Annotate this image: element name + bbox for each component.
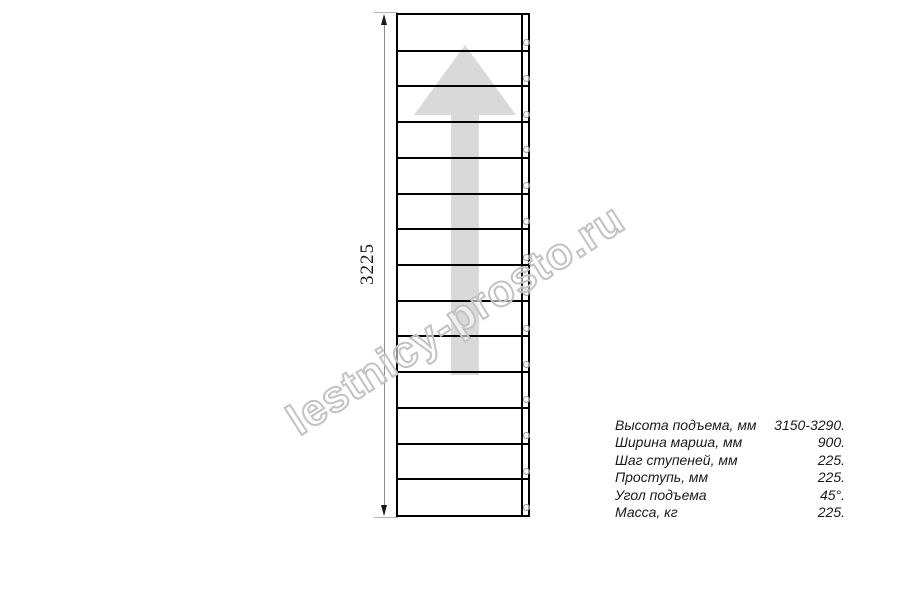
- screw-hole-icon: [523, 396, 530, 403]
- spec-label: Угол подъема: [615, 487, 707, 504]
- tread-line: [398, 85, 528, 87]
- spec-row: Ширина марша, мм 900.: [615, 434, 845, 451]
- screw-hole-icon: [523, 504, 530, 511]
- extension-line-bottom: [374, 517, 398, 518]
- screw-hole-icon: [523, 182, 530, 189]
- height-dimension-label: 3225: [357, 243, 379, 285]
- direction-up-arrow-icon: [414, 45, 516, 115]
- screw-hole-icon: [523, 325, 530, 332]
- screw-hole-icon: [523, 39, 530, 46]
- screw-hole-icon: [523, 75, 530, 82]
- spec-label: Высота подъема, мм: [615, 417, 757, 434]
- spec-value: 3150-3290.: [774, 417, 845, 434]
- spec-value: 225.: [818, 504, 845, 521]
- screw-hole-icon: [523, 432, 530, 439]
- spec-row: Проступь, мм 225.: [615, 469, 845, 486]
- spec-table: Высота подъема, мм 3150-3290. Ширина мар…: [615, 417, 845, 521]
- spec-row: Шаг ступеней, мм 225.: [615, 452, 845, 469]
- spec-row: Масса, кг 225.: [615, 504, 845, 521]
- tread-line: [398, 407, 528, 409]
- screw-hole-icon: [523, 111, 530, 118]
- spec-value: 225.: [818, 452, 845, 469]
- dimension-arrowhead-up-icon: [381, 14, 387, 25]
- tread-line: [398, 50, 528, 52]
- tread-line: [398, 228, 528, 230]
- spec-row: Высота подъема, мм 3150-3290.: [615, 417, 845, 434]
- tread-line: [398, 443, 528, 445]
- spec-value: 45°.: [820, 487, 845, 504]
- screw-hole-icon: [523, 218, 530, 225]
- screw-hole-icon: [523, 146, 530, 153]
- tread-line: [398, 478, 528, 480]
- tread-line: [398, 121, 528, 123]
- spec-label: Ширина марша, мм: [615, 434, 742, 451]
- dimension-arrowhead-down-icon: [381, 505, 387, 516]
- dimension-line: [384, 16, 385, 514]
- page: 3225 lestnicy-prosto.ru Высота подъема, …: [0, 0, 900, 600]
- extension-line-top: [374, 12, 398, 13]
- spec-label: Проступь, мм: [615, 469, 708, 486]
- screw-hole-icon: [523, 361, 530, 368]
- tread-line: [398, 157, 528, 159]
- screw-hole-icon: [523, 468, 530, 475]
- tread-line: [398, 193, 528, 195]
- spec-label: Шаг ступеней, мм: [615, 452, 738, 469]
- spec-value: 900.: [818, 434, 845, 451]
- spec-label: Масса, кг: [615, 504, 678, 521]
- spec-row: Угол подъема 45°.: [615, 487, 845, 504]
- spec-value: 225.: [818, 469, 845, 486]
